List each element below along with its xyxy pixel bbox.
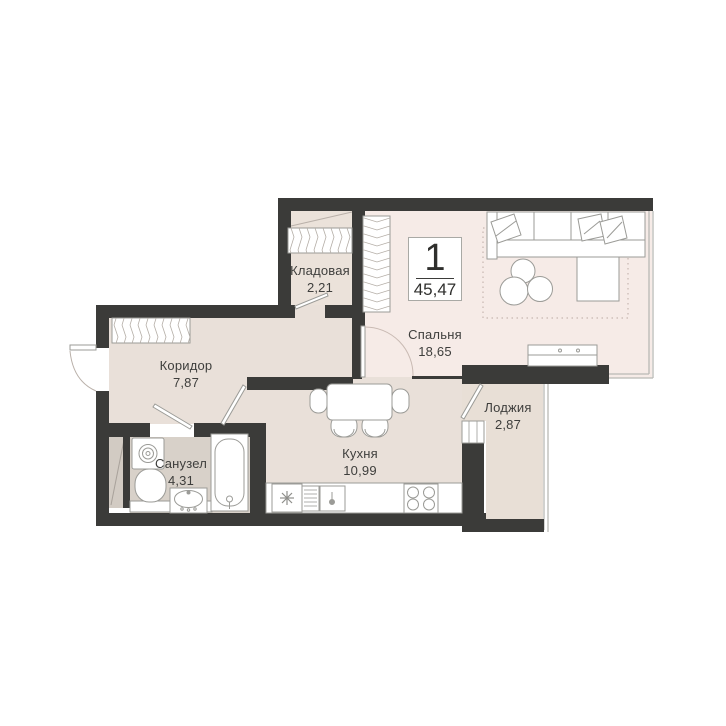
wall-loggia-bottom (462, 519, 544, 532)
wall-left-lower (96, 391, 109, 526)
room-name: Спальня (408, 326, 462, 343)
room-label-kitchen: Кухня 10,99 (342, 445, 378, 479)
room-name: Санузел (155, 455, 207, 472)
entrance-door-arc (70, 351, 96, 391)
room-name: Кладовая (290, 262, 350, 279)
corridor-wardrobe-hatch (112, 318, 190, 343)
wall-left-upper (96, 305, 109, 348)
wall-storage-left (278, 198, 291, 318)
entrance-door-leaf (70, 345, 96, 350)
fridge-snowflake-icon (280, 491, 294, 505)
wall-bathroom-top-left (109, 423, 150, 437)
bedroom-door-leaf (361, 326, 365, 377)
room-label-corridor: Коридор 7,87 (160, 357, 213, 391)
partition-kitchen-bedroom-right (412, 376, 462, 379)
chair-icon (392, 389, 409, 413)
wall-bathroom-right (250, 423, 266, 513)
wall-corridor-top-left (96, 305, 295, 318)
wall-bottom (96, 513, 486, 526)
room-area: 10,99 (342, 462, 378, 479)
wall-loggia-top (462, 365, 609, 384)
room-name: Лоджия (484, 399, 531, 416)
bedroom-wardrobe-hatch (363, 216, 390, 312)
floor-plan-drawing (0, 0, 726, 726)
badge-divider (416, 278, 454, 279)
apartment-type-badge: 1 45,47 (408, 237, 462, 301)
storage-shelving-hatch (288, 228, 352, 253)
room-area: 18,65 (408, 343, 462, 360)
rooms-count: 1 (424, 238, 445, 278)
wall-top (278, 198, 653, 211)
room-name: Кухня (342, 445, 378, 462)
room-label-bathroom: Санузел 4,31 (155, 455, 207, 489)
room-label-bedroom: Спальня 18,65 (408, 326, 462, 360)
loggia-window (462, 421, 484, 443)
room-label-loggia: Лоджия 2,87 (484, 399, 531, 433)
room-area: 2,87 (484, 416, 531, 433)
floor-plan-page: Кладовая 2,21 Коридор 7,87 Санузел 4,31 … (0, 0, 726, 726)
room-area: 7,87 (160, 374, 213, 391)
chair-icon (310, 389, 327, 413)
room-area: 4,31 (155, 472, 207, 489)
kitchen-counter (266, 483, 462, 513)
wall-shaft-right (123, 437, 130, 508)
total-area: 45,47 (414, 280, 457, 300)
tv-stand-icon (528, 345, 597, 366)
room-area: 2,21 (290, 279, 350, 296)
room-label-storage: Кладовая 2,21 (290, 262, 350, 296)
room-name: Коридор (160, 357, 213, 374)
